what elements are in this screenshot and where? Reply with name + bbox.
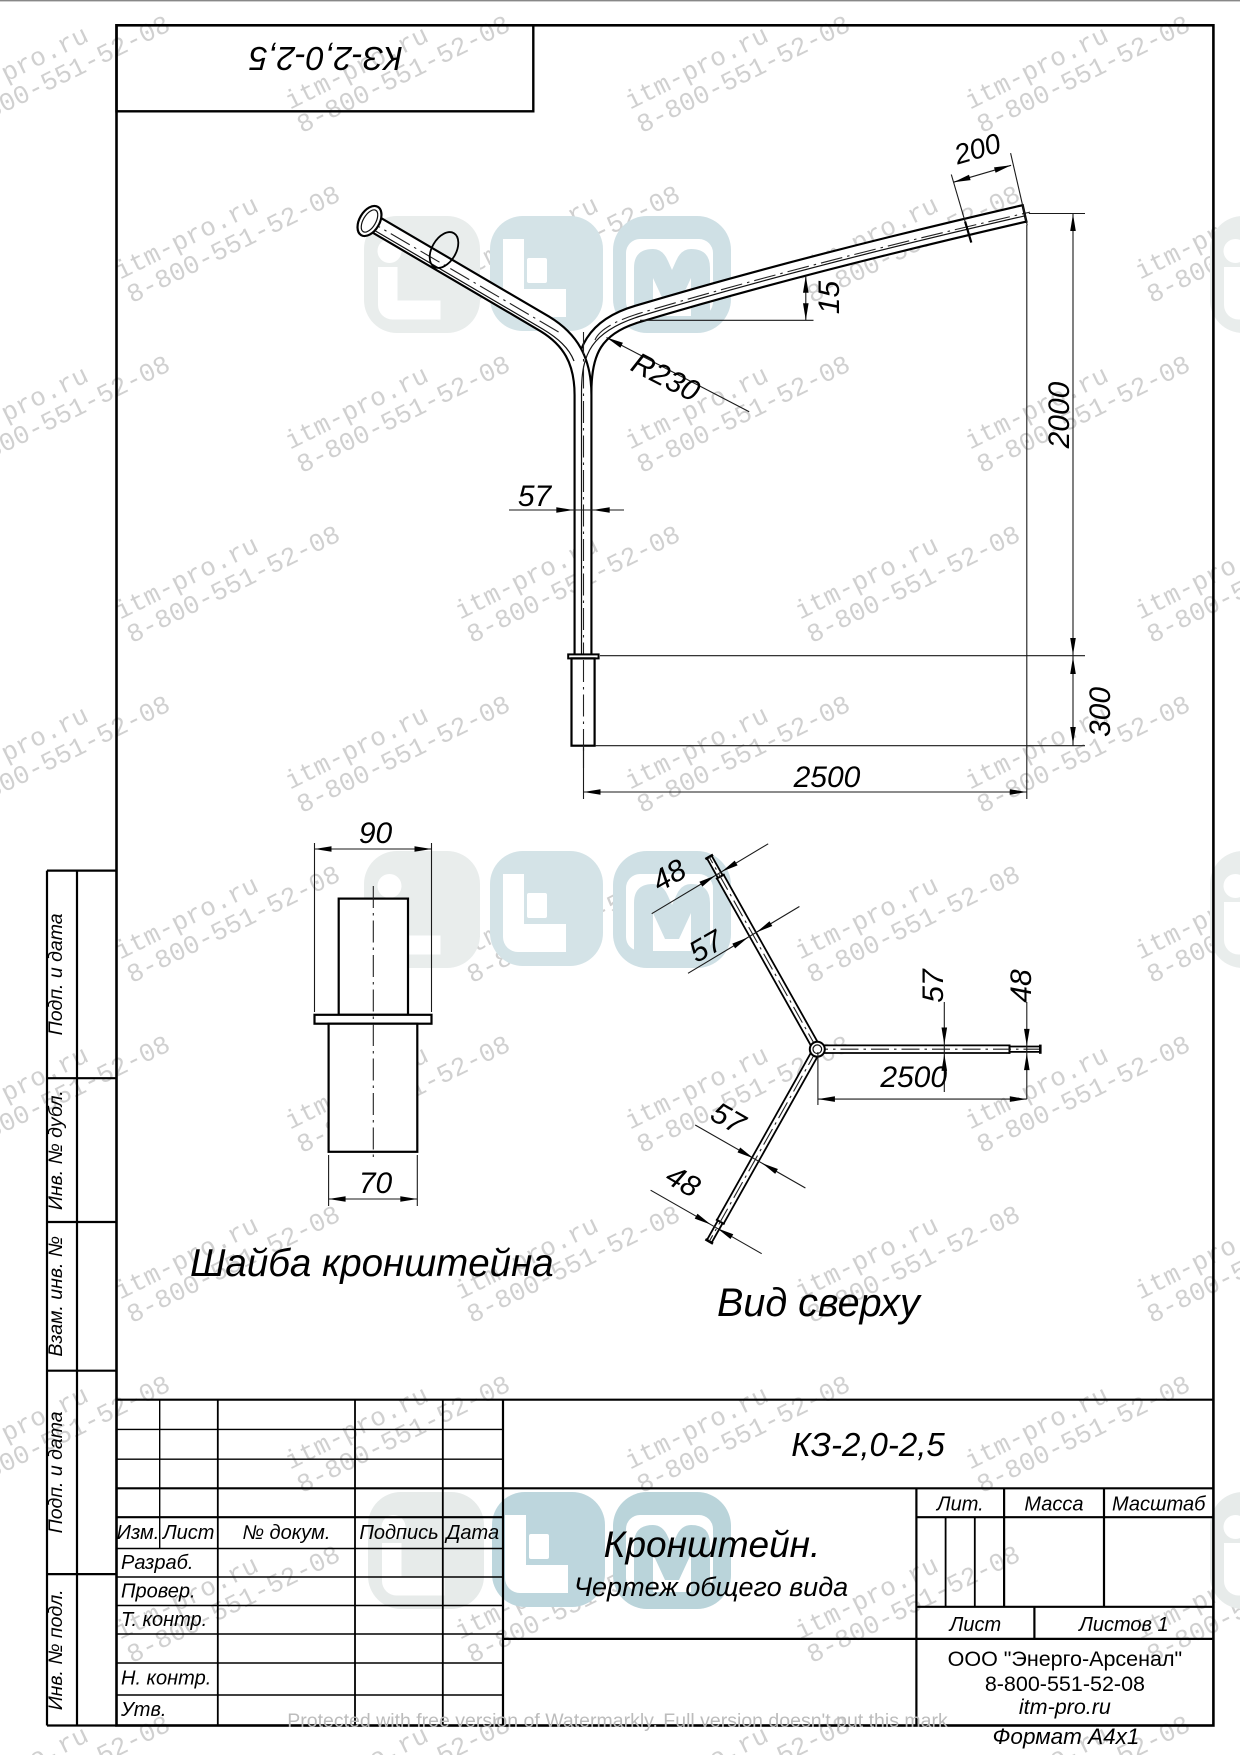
svg-text:Кронштейн.: Кронштейн. (604, 1524, 821, 1565)
svg-text:Лит.: Лит. (935, 1494, 984, 1516)
svg-text:8-800-551-52-08: 8-800-551-52-08 (985, 1672, 1145, 1696)
svg-text:Подп. и дата: Подп. и дата (45, 913, 67, 1035)
svg-text:Листов 1: Листов 1 (1077, 1614, 1169, 1636)
svg-text:Чертеж общего вида: Чертеж общего вида (574, 1572, 848, 1602)
svg-text:2500: 2500 (793, 761, 861, 794)
svg-text:Подпись: Подпись (359, 1522, 438, 1544)
svg-text:Protected with free version of: Protected with free version of Watermark… (287, 1710, 948, 1732)
svg-text:ООО "Энерго-Арсенал": ООО "Энерго-Арсенал" (948, 1647, 1183, 1671)
svg-text:itm-pro.ru: itm-pro.ru (1019, 1695, 1111, 1719)
svg-text:Лист: Лист (948, 1614, 1002, 1636)
svg-text:Инв. № подл.: Инв. № подл. (45, 1589, 67, 1710)
svg-text:Провер.: Провер. (121, 1581, 196, 1603)
svg-text:Утв.: Утв. (120, 1699, 166, 1721)
svg-text:70: 70 (359, 1167, 393, 1200)
svg-text:2500: 2500 (879, 1061, 947, 1094)
svg-text:2000: 2000 (1043, 381, 1076, 449)
svg-text:Инв. № дубл.: Инв. № дубл. (45, 1090, 67, 1210)
svg-text:Разраб.: Разраб. (121, 1552, 193, 1574)
svg-text:№ докум.: № докум. (242, 1522, 330, 1544)
svg-text:КЗ-2,0-2,5: КЗ-2,0-2,5 (249, 40, 403, 77)
svg-text:Подп. и дата: Подп. и дата (45, 1411, 67, 1533)
svg-text:Шайба кронштейна: Шайба кронштейна (190, 1242, 554, 1285)
svg-text:57: 57 (518, 480, 553, 513)
svg-text:57: 57 (917, 968, 950, 1003)
svg-text:Лист: Лист (161, 1522, 215, 1544)
svg-text:Масштаб: Масштаб (1112, 1494, 1206, 1516)
svg-text:Н. контр.: Н. контр. (121, 1668, 211, 1690)
svg-text:90: 90 (359, 817, 393, 850)
svg-text:48: 48 (1005, 969, 1038, 1003)
svg-text:Масса: Масса (1024, 1494, 1083, 1516)
svg-text:Вид сверху: Вид сверху (717, 1281, 922, 1325)
svg-text:Формат А4х1: Формат А4х1 (993, 1724, 1140, 1749)
svg-text:КЗ-2,0-2,5: КЗ-2,0-2,5 (791, 1426, 945, 1463)
svg-text:Дата: Дата (444, 1522, 499, 1544)
svg-text:300: 300 (1084, 687, 1117, 737)
svg-text:15: 15 (813, 281, 846, 315)
svg-text:Изм.: Изм. (117, 1522, 160, 1544)
svg-text:Т. контр.: Т. контр. (121, 1609, 207, 1631)
svg-text:Взам. инв. №: Взам. инв. № (45, 1236, 67, 1357)
